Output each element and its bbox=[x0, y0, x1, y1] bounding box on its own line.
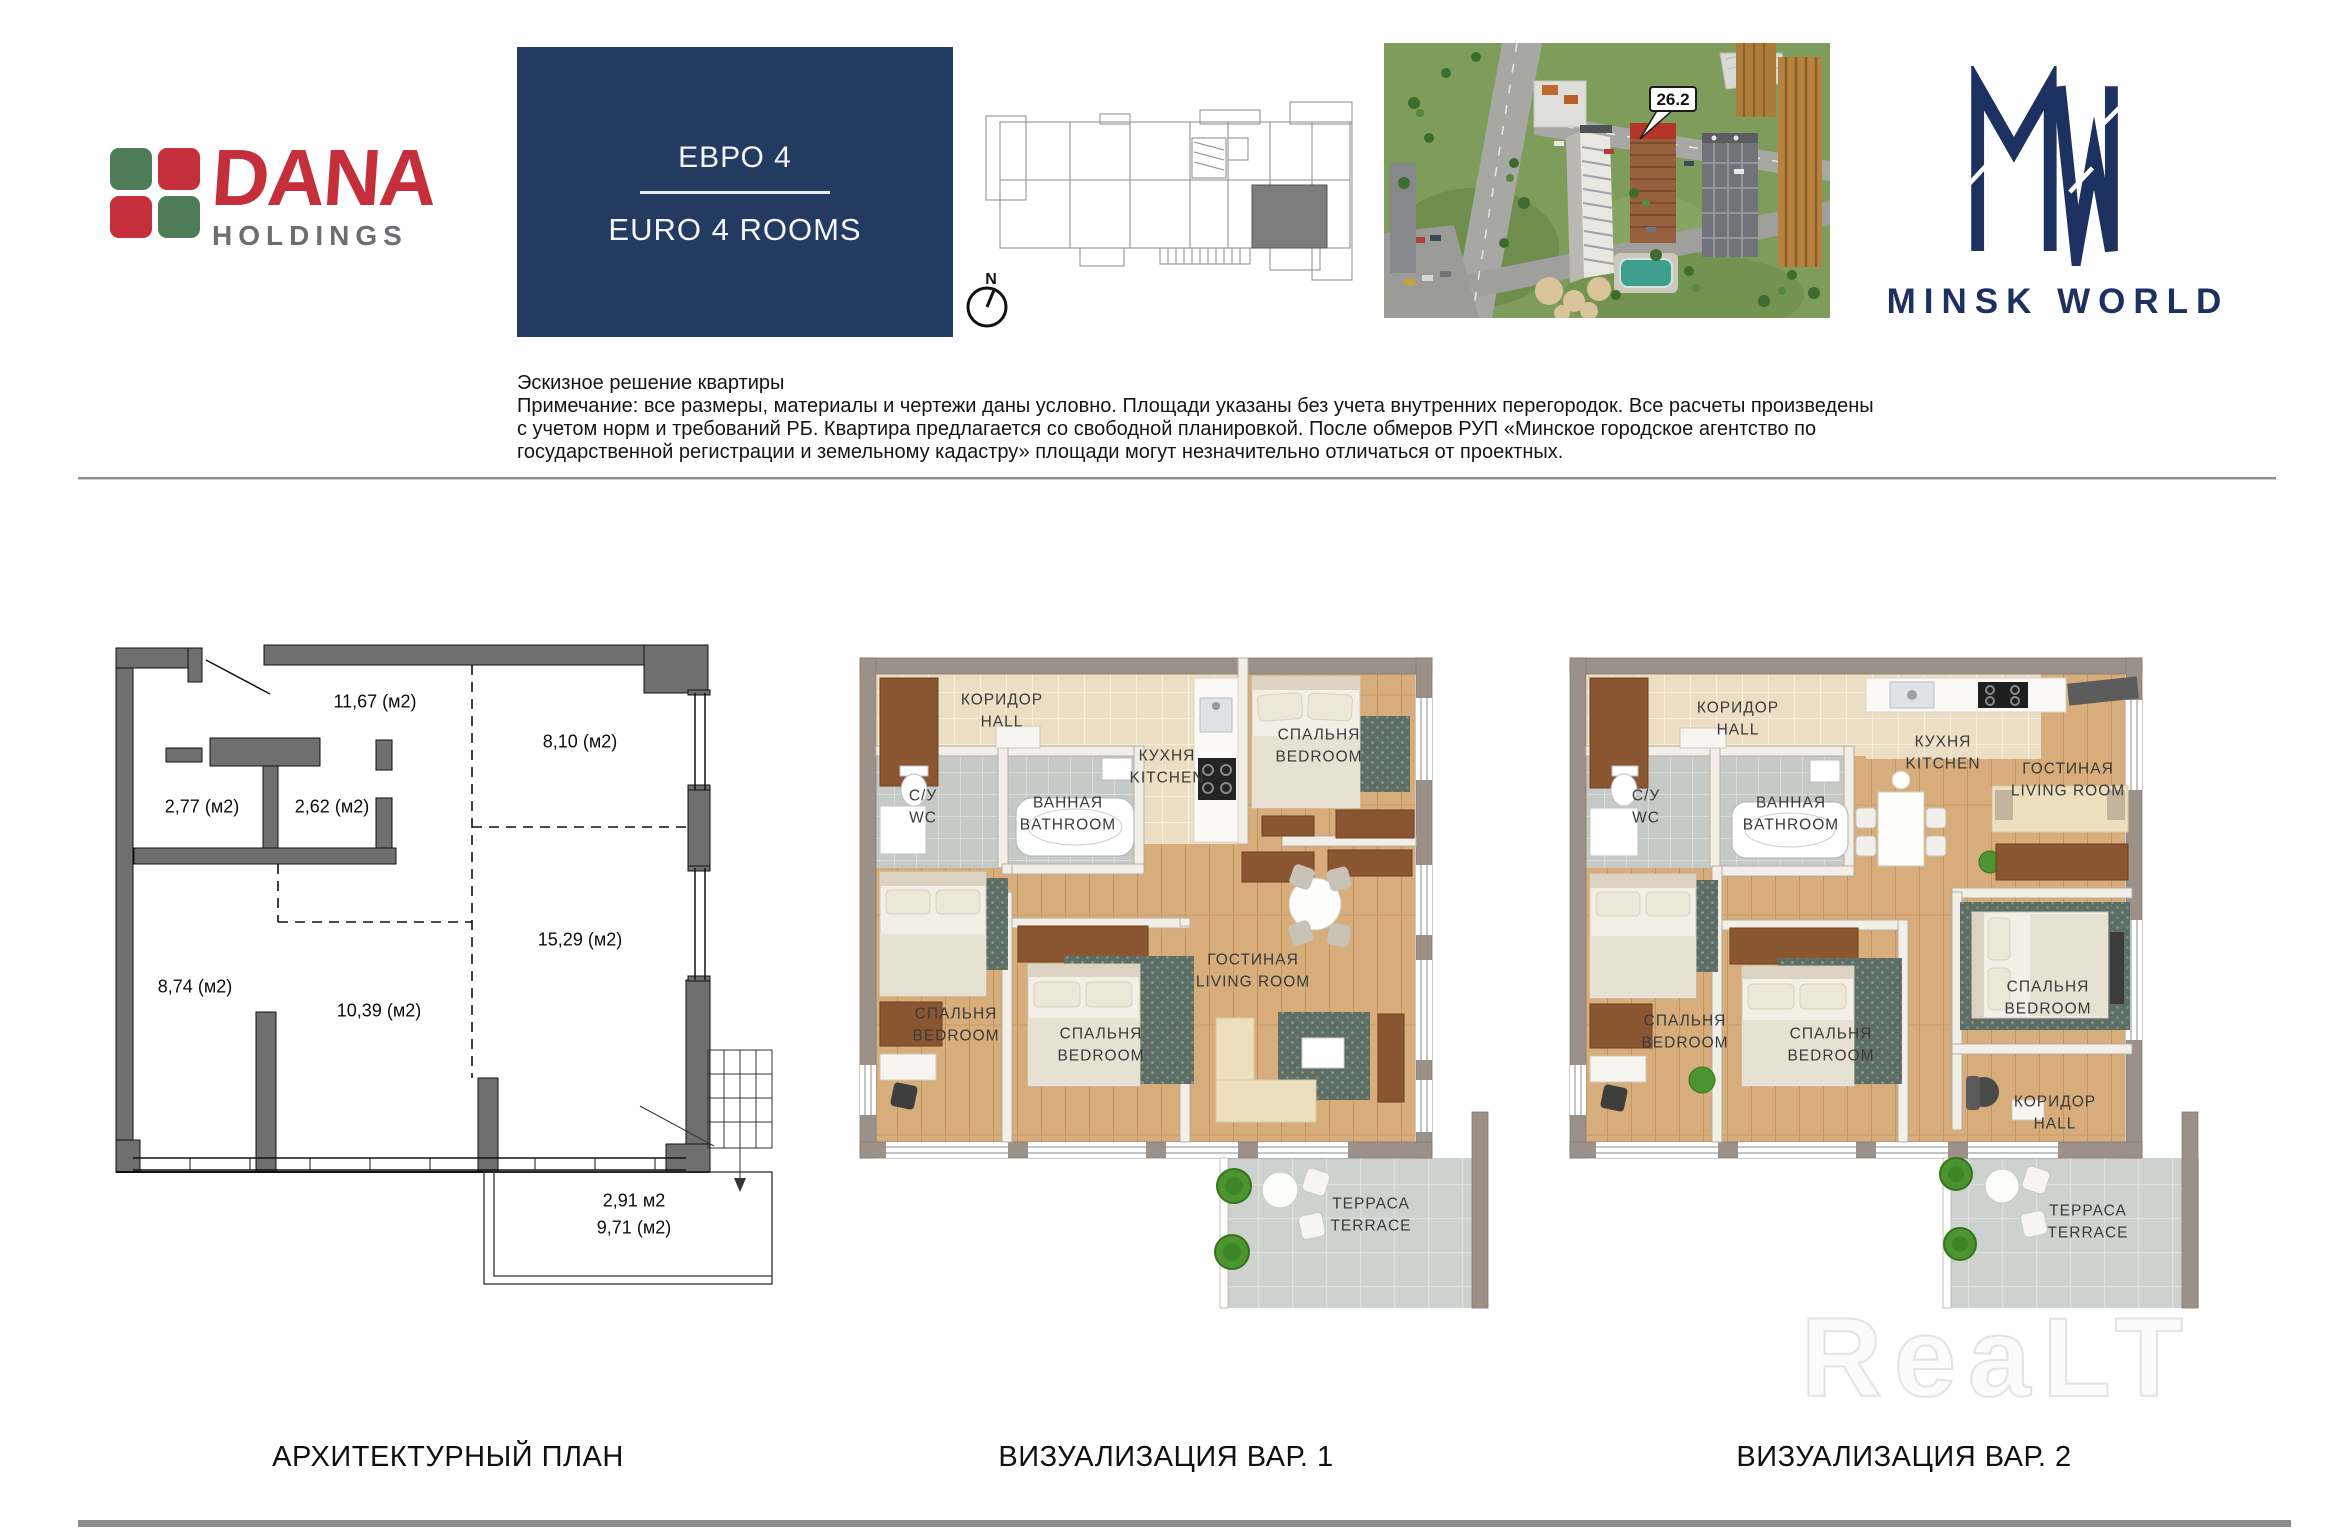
room-label-bedroom-right: СПАЛЬНЯBEDROOM bbox=[2004, 977, 2091, 1022]
room-label-hall2: КОРИДОРHALL bbox=[2014, 1092, 2096, 1137]
area-label-hall: 11,67 (м2) bbox=[333, 692, 416, 713]
disclaimer-line: с учетом норм и требований РБ. Квартира … bbox=[517, 418, 1937, 441]
room-label-hall: КОРИДОРHALL bbox=[1697, 698, 1779, 743]
architectural-plan: 11,67 (м2) 8,10 (м2) 2,77 (м2) 2,62 (м2)… bbox=[80, 620, 800, 1300]
dana-logo-squares-icon bbox=[110, 148, 200, 238]
storey-plan-sketch: N bbox=[960, 80, 1360, 340]
area-label-middle: 10,39 (м2) bbox=[337, 1001, 421, 1022]
disclaimer-line: государственной регистрации и земельному… bbox=[517, 441, 1937, 464]
logo-square-red bbox=[158, 148, 200, 190]
room-label-bedroom-top: СПАЛЬНЯBEDROOM bbox=[1275, 725, 1362, 770]
dana-subtitle: HOLDINGS bbox=[212, 220, 435, 252]
visualization-plan-1: КОРИДОРHALL С/УWC ВАННАЯBATHROOM КУХНЯKI… bbox=[850, 640, 1510, 1320]
caption-visualization-1: ВИЗУАЛИЗАЦИЯ ВАР. 1 bbox=[836, 1441, 1496, 1474]
room-label-bath: ВАННАЯBATHROOM bbox=[1020, 793, 1116, 838]
room-label-wc: С/УWC bbox=[909, 786, 937, 831]
header-separator-line bbox=[78, 477, 2276, 480]
compass-icon: N bbox=[968, 271, 1006, 326]
room-label-bath: ВАННАЯBATHROOM bbox=[1743, 793, 1839, 838]
dana-title: DANA bbox=[209, 142, 437, 214]
dana-holdings-logo: DANA HOLDINGS bbox=[110, 142, 435, 252]
room-label-bedroom-mid: СПАЛЬНЯBEDROOM bbox=[1057, 1024, 1144, 1069]
stairs-arrow-icon bbox=[734, 1178, 746, 1192]
logo-square-green bbox=[158, 196, 200, 238]
area-label-wc: 2,77 (м2) bbox=[165, 797, 239, 818]
room-label-kitchen: КУХНЯKITCHEN bbox=[1905, 732, 1980, 777]
room-label-terrace: ТЕРРАСАTERRACE bbox=[1330, 1194, 1411, 1239]
room-label-bedroom-mid: СПАЛЬНЯBEDROOM bbox=[1787, 1024, 1874, 1069]
room-label-living: ГОСТИНАЯLIVING ROOM bbox=[2011, 759, 2125, 804]
caption-architectural-plan: АРХИТЕКТУРНЫЙ ПЛАН bbox=[118, 1441, 778, 1474]
area-label-bath: 2,62 (м2) bbox=[295, 797, 369, 818]
page-footer-bar bbox=[78, 1520, 2291, 1527]
logo-square-green bbox=[110, 148, 152, 190]
area-label-top-right: 8,10 (м2) bbox=[543, 732, 617, 753]
entrance-door-mark bbox=[206, 660, 270, 694]
apartment-type-banner: ЕВРО 4 EURO 4 ROOMS bbox=[517, 47, 953, 337]
caption-visualization-2: ВИЗУАЛИЗАЦИЯ ВАР. 2 bbox=[1574, 1441, 2234, 1474]
logo-square-red bbox=[110, 196, 152, 238]
compass-north-label: N bbox=[985, 271, 997, 288]
banner-divider bbox=[640, 191, 830, 194]
dana-logo-text: DANA HOLDINGS bbox=[212, 142, 435, 252]
highlighted-building bbox=[1630, 123, 1676, 243]
realt-watermark: ReaLT bbox=[1748, 1293, 2248, 1422]
room-label-living: ГОСТИНАЯLIVING ROOM bbox=[1196, 950, 1310, 995]
disclaimer-line: Примечание: все размеры, материалы и чер… bbox=[517, 395, 1937, 418]
area-label-terrace-a: 2,91 м2 bbox=[603, 1191, 665, 1212]
room-label-kitchen: КУХНЯKITCHEN bbox=[1129, 746, 1204, 791]
room-label-terrace: ТЕРРАСАTERRACE bbox=[2047, 1201, 2128, 1246]
room-label-bedroom-left: СПАЛЬНЯBEDROOM bbox=[1641, 1011, 1728, 1056]
minsk-world-wordmark: MINSK WORLD bbox=[1875, 282, 2241, 322]
minsk-world-monogram-icon bbox=[1958, 66, 2128, 266]
area-label-left: 8,74 (м2) bbox=[158, 977, 232, 998]
room-label-bedroom-left: СПАЛЬНЯBEDROOM bbox=[912, 1004, 999, 1049]
room-label-hall: КОРИДОРHALL bbox=[961, 690, 1043, 735]
highlighted-unit bbox=[1252, 185, 1327, 248]
visualization-plan-2: КОРИДОРHALL С/УWC ВАННАЯBATHROOM КУХНЯKI… bbox=[1560, 640, 2220, 1320]
area-label-right: 15,29 (м2) bbox=[538, 930, 622, 951]
apartment-type-en: EURO 4 ROOMS bbox=[608, 212, 861, 248]
apartment-type-ru: ЕВРО 4 bbox=[678, 141, 792, 175]
aerial-site-photo: 26.2 bbox=[1384, 43, 1830, 318]
badge-value: 26.2 bbox=[1656, 90, 1689, 109]
disclaimer-text: Эскизное решение квартиры Примечание: вс… bbox=[517, 372, 1937, 464]
area-label-terrace-b: 9,71 (м2) bbox=[597, 1218, 671, 1239]
room-label-wc: С/УWC bbox=[1632, 786, 1660, 831]
disclaimer-title: Эскизное решение квартиры bbox=[517, 372, 1937, 395]
